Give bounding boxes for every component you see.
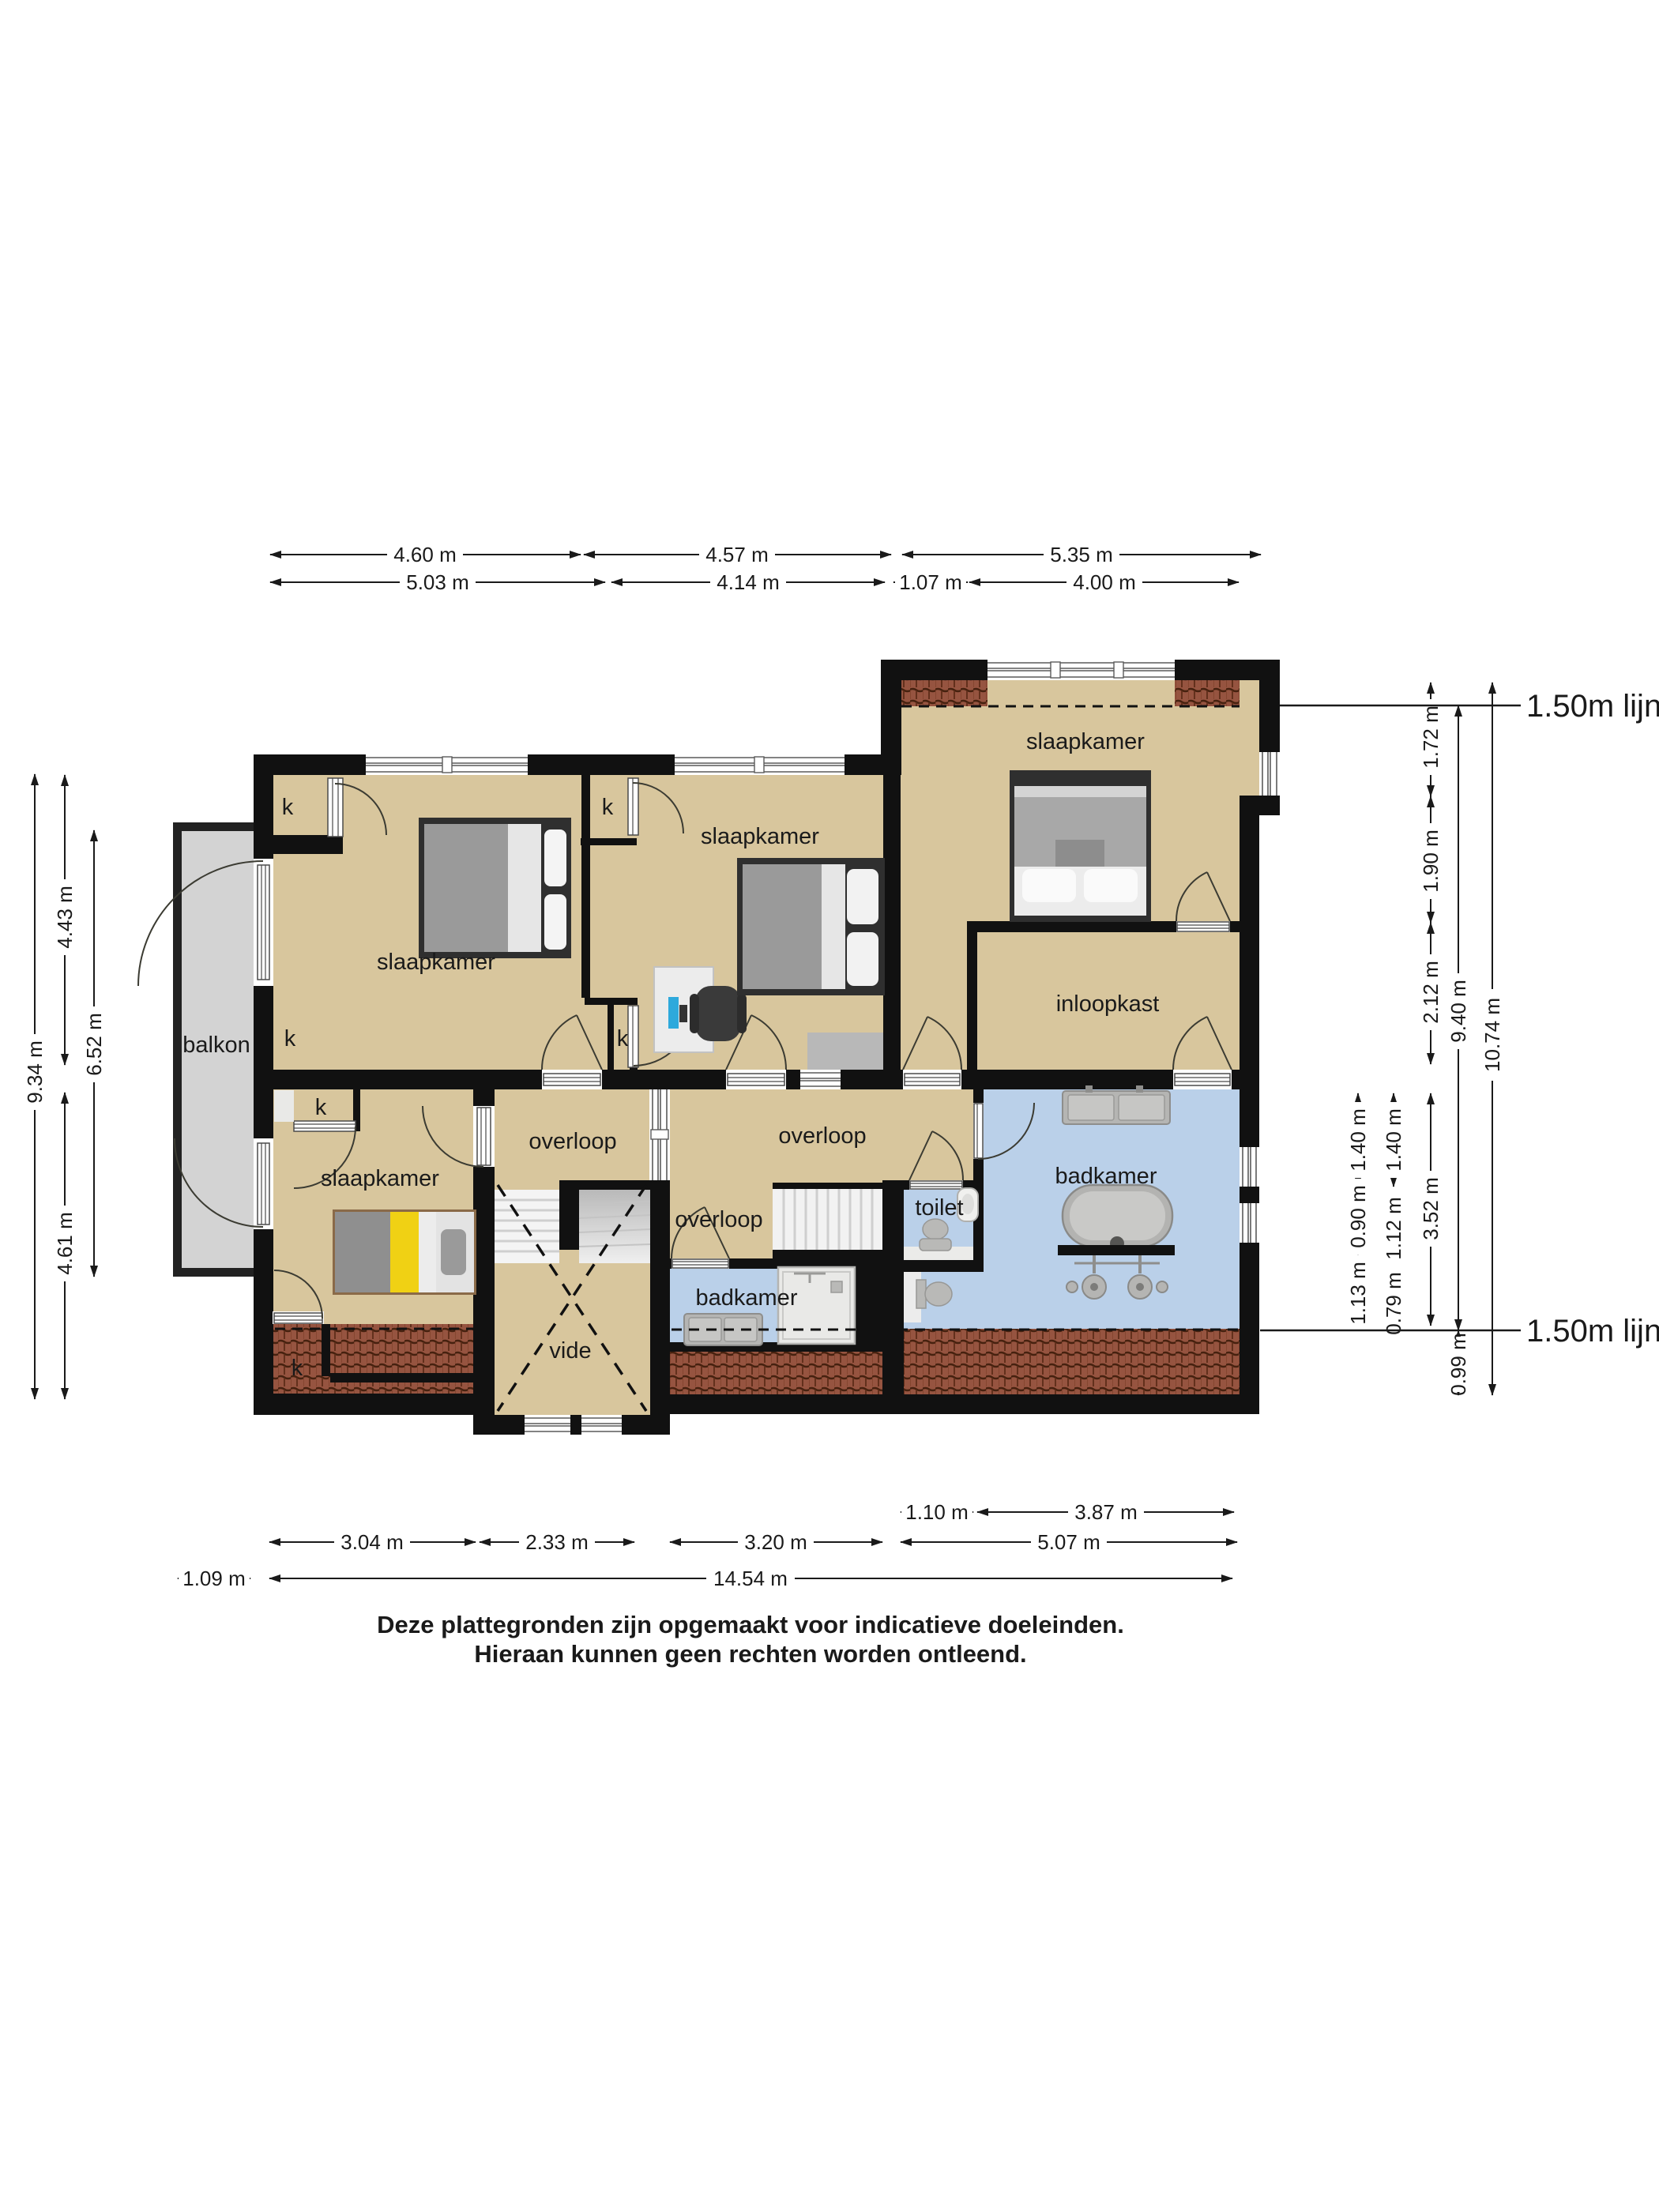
svg-text:6.52 m: 6.52 m [82,1013,106,1076]
svg-text:1.40 m: 1.40 m [1382,1108,1405,1172]
svg-text:0.99 m: 0.99 m [1446,1333,1470,1396]
svg-text:k: k [617,1026,629,1051]
svg-text:1.09 m: 1.09 m [182,1567,246,1590]
svg-text:1.13 m: 1.13 m [1346,1262,1370,1325]
svg-text:4.14 m: 4.14 m [717,570,780,594]
svg-text:k: k [292,1356,303,1381]
svg-text:slaapkamer: slaapkamer [701,824,819,849]
svg-text:badkamer: badkamer [696,1285,798,1311]
svg-text:3.52 m: 3.52 m [1419,1177,1443,1240]
svg-text:vide: vide [549,1338,591,1364]
svg-text:14.54 m: 14.54 m [713,1567,788,1590]
svg-text:toilet: toilet [915,1195,963,1221]
svg-text:2.12 m: 2.12 m [1419,961,1443,1024]
svg-text:inloopkast: inloopkast [1056,991,1160,1017]
svg-text:4.43 m: 4.43 m [53,886,77,949]
svg-text:Deze plattegronden zijn opgema: Deze plattegronden zijn opgemaakt voor i… [377,1611,1124,1638]
svg-text:3.04 m: 3.04 m [340,1530,404,1554]
svg-text:overloop: overloop [778,1123,866,1149]
svg-text:4.57 m: 4.57 m [705,543,769,566]
svg-text:0.79 m: 0.79 m [1382,1272,1405,1335]
svg-text:1.90 m: 1.90 m [1419,829,1443,893]
svg-text:0.90 m: 0.90 m [1346,1185,1370,1248]
svg-text:slaapkamer: slaapkamer [1026,729,1145,754]
svg-text:balkon: balkon [182,1033,250,1058]
svg-text:10.74 m: 10.74 m [1480,998,1504,1072]
svg-text:1.40 m: 1.40 m [1346,1108,1370,1172]
svg-text:overloop: overloop [675,1207,762,1232]
svg-text:3.87 m: 3.87 m [1074,1500,1138,1524]
svg-text:k: k [284,1026,296,1051]
svg-text:1.12 m: 1.12 m [1382,1197,1405,1260]
svg-text:9.40 m: 9.40 m [1446,980,1470,1043]
svg-text:Hieraan kunnen geen rechten wo: Hieraan kunnen geen rechten worden ontle… [474,1640,1026,1668]
svg-text:4.60 m: 4.60 m [393,543,457,566]
svg-text:5.07 m: 5.07 m [1037,1530,1100,1554]
svg-text:slaapkamer: slaapkamer [321,1166,439,1191]
svg-text:1.50m lijn: 1.50m lijn [1526,1314,1659,1349]
svg-text:3.20 m: 3.20 m [744,1530,807,1554]
svg-text:k: k [602,795,614,820]
svg-text:9.34 m: 9.34 m [23,1040,47,1104]
svg-text:k: k [315,1095,327,1120]
svg-text:badkamer: badkamer [1055,1164,1157,1189]
svg-text:1.07 m: 1.07 m [899,570,962,594]
svg-text:slaapkamer: slaapkamer [377,950,495,975]
svg-text:5.35 m: 5.35 m [1050,543,1113,566]
svg-text:5.03 m: 5.03 m [406,570,469,594]
svg-text:k: k [282,795,294,820]
svg-text:overloop: overloop [529,1129,616,1154]
svg-text:1.10 m: 1.10 m [905,1500,969,1524]
svg-text:2.33 m: 2.33 m [525,1530,589,1554]
svg-text:4.00 m: 4.00 m [1073,570,1136,594]
svg-text:1.72 m: 1.72 m [1419,705,1443,769]
svg-text:1.50m lijn: 1.50m lijn [1526,689,1659,724]
svg-text:4.61 m: 4.61 m [53,1212,77,1275]
